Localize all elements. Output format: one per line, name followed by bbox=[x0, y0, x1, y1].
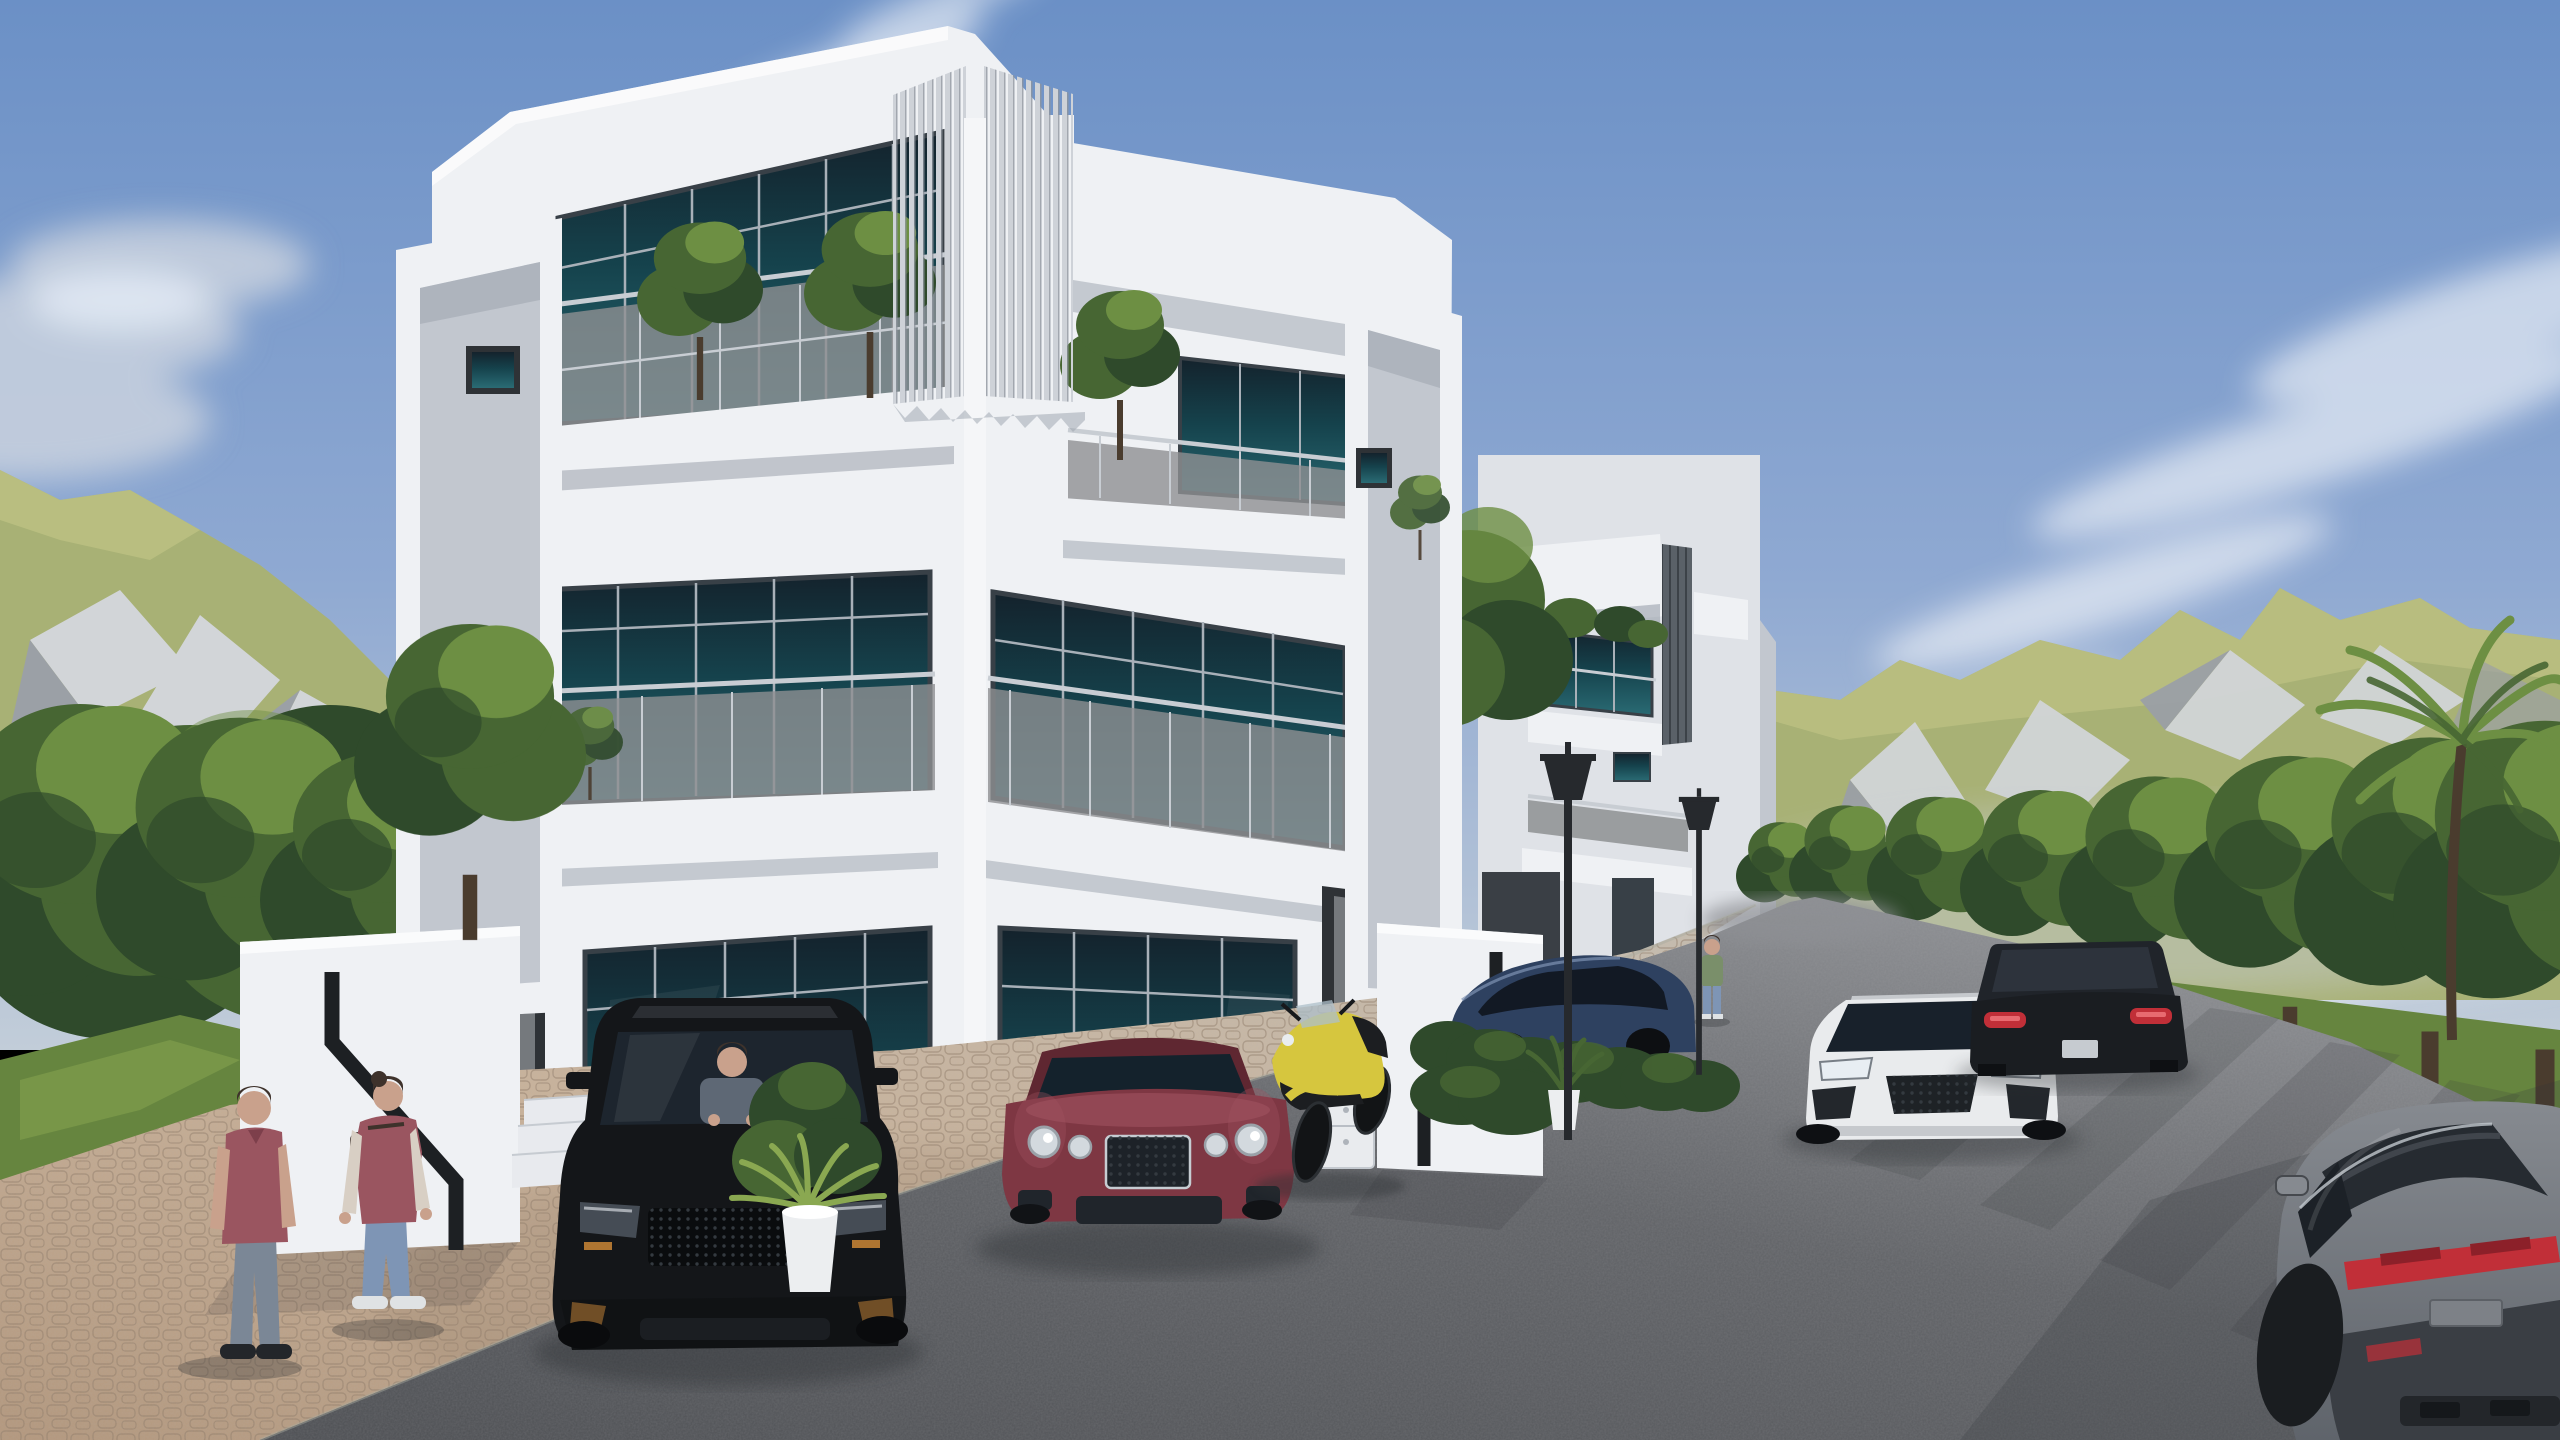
render-viewport: Sky Clouds Mountain ri bbox=[0, 0, 2560, 1440]
portal-right: Projecting frame (right end) bbox=[1345, 282, 1462, 1028]
portal-left: Projecting frame (left end) bbox=[396, 218, 562, 1020]
suv-dark-rear: Dark SUV driving away bbox=[1956, 941, 2200, 1092]
scene-render: Sky Clouds Mountain ri bbox=[0, 0, 2560, 1440]
